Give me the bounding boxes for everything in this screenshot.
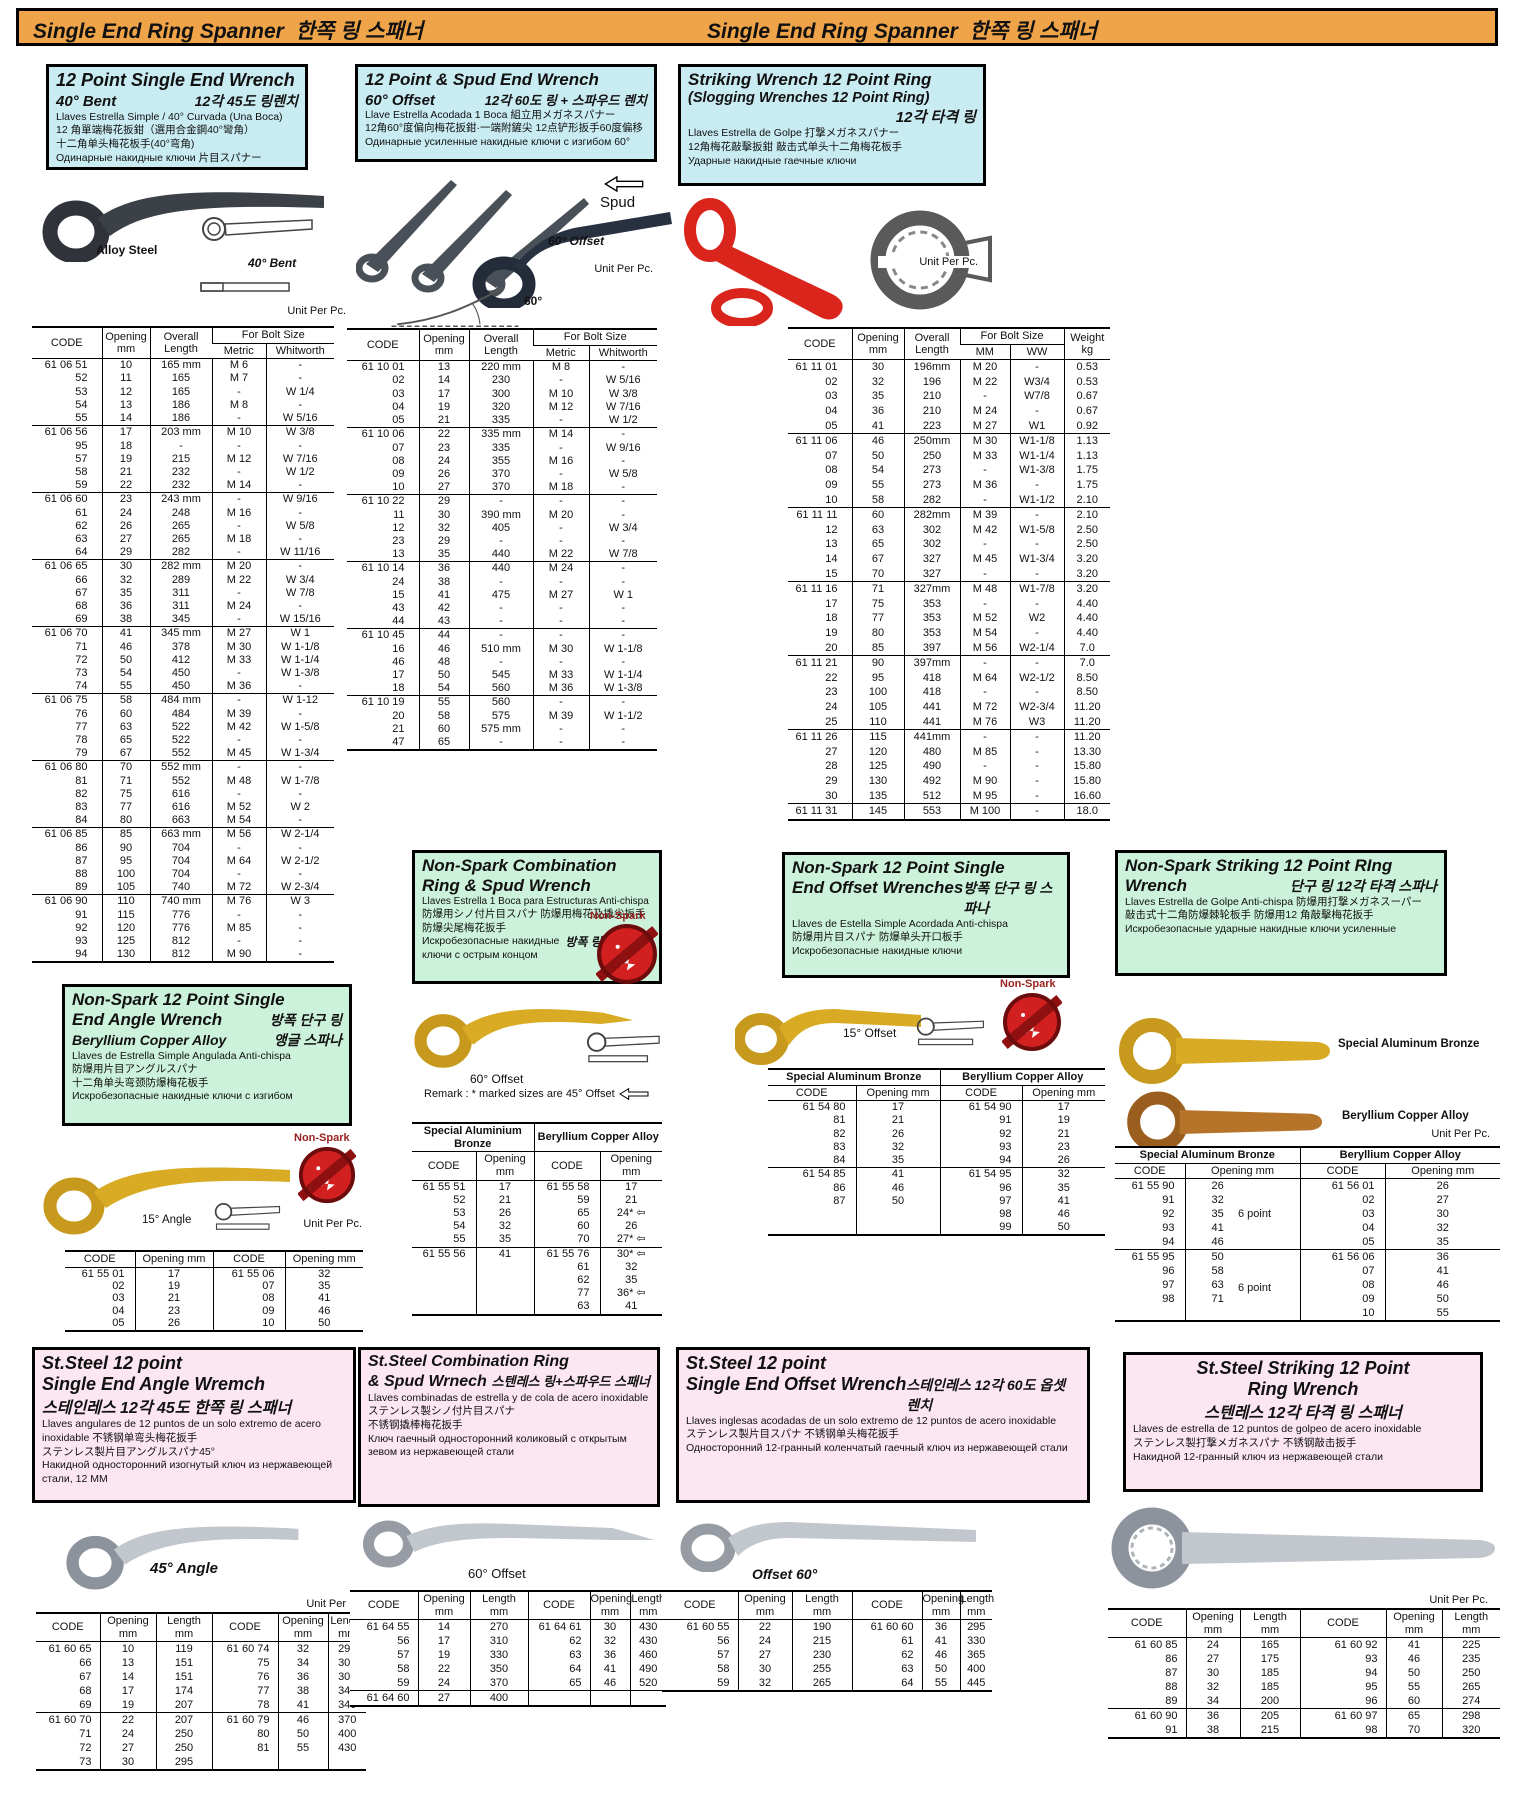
table-cell: 704 [150,842,212,855]
table-cell: 03 [65,1292,135,1304]
static-element: Ключ гаечный односторонний коликовый с о… [368,1433,650,1460]
table-cell: 26 [1385,1179,1500,1194]
column-header: Opening mm [476,1152,534,1180]
table-row: 7250412M 33W 1-1/4 [32,654,334,667]
table-cell: 07 [1300,1264,1385,1278]
static-element: Llaves de Estrella Simple Angulada Anti-… [72,1050,342,1064]
table-row: 96580741 [1115,1264,1500,1278]
table-cell: M 72 [960,700,1010,715]
table-cell: 41 [600,1300,662,1314]
table-cell: W 3/8 [266,426,334,440]
column-header: CODE [347,329,419,361]
table-cell: - [960,597,1010,612]
table-row: 1232405-W 3/4 [347,522,657,535]
static-element [397,288,503,325]
table-cell: 450 [150,667,212,680]
section-title: Non-Spark Striking 12 Point RIng [1125,856,1437,876]
table-cell: 08 [1300,1278,1385,1292]
table-cell: 68 [32,600,102,613]
table-cell: 545 [469,669,533,682]
static-element: End Angle Wrench [72,1010,222,1030]
steel-offset-wrench-illustration [680,1510,980,1572]
table-cell: 16.60 [1064,789,1110,804]
table-cell: 08 [347,455,419,468]
table-row: 0436210M 24-0.67 [788,404,1110,419]
table-cell: W2-1/4 [1010,641,1064,656]
table-cell: 87 [32,855,102,868]
table-cell: 91 [1115,1193,1185,1207]
table-cell: 61 55 51 [412,1180,476,1194]
table-cell: 190 [792,1620,852,1635]
table-cell: 61 11 06 [788,434,852,449]
table-cell: - [960,685,1010,700]
table-cell: M 42 [212,721,266,734]
table-cell: M 90 [212,948,266,962]
table-cell: 46 [1386,1652,1442,1666]
non-spark-icon [298,1146,356,1204]
table-cell: 07 [213,1280,285,1292]
column-header: Whitworth [266,343,334,359]
table-cell: 46 [856,1182,940,1195]
table-cell: M 36 [212,680,266,694]
striking-wrench-table: CODEOpening mmOverall LengthFor Bolt Siz… [788,327,1110,821]
table-cell: 81 [32,775,102,788]
section-title: St.Steel Combination Ring [368,1353,650,1371]
table-cell [476,1287,534,1300]
table-cell: M 20 [212,560,266,574]
table-cell: 250 [1442,1666,1500,1680]
table-cell: 41 [922,1634,960,1648]
static-element: 61 11 0130196mmM 20-0.530232196M 22W3/40… [788,360,1110,820]
table-cell: 61 06 51 [32,359,102,373]
section-title: St.Steel 12 point [42,1353,346,1374]
table-cell: 30 [590,1620,630,1635]
table-cell: W 1-1/4 [589,669,657,682]
table-cell: 207 [156,1713,212,1728]
table-cell: 05 [1300,1235,1385,1250]
column-header: Opening mm [135,1251,213,1267]
table-cell: 282 [904,493,960,508]
table-cell: M 27 [960,419,1010,434]
table-cell: 36 [590,1648,630,1662]
table-row: 4648--- [347,656,657,669]
nonspark-offset-table: Special Aluminum BronzeBeryllium Copper … [768,1068,1105,1236]
static-element: Llaves angulares de 12 puntos de un solo… [42,1418,346,1445]
static-element [369,1526,409,1562]
table-cell: M 12 [212,453,266,466]
static-element: CODEOpening mmCODEOpening mm [65,1251,363,1267]
table-cell: 0.53 [1064,375,1110,390]
table-cell: W 3/8 [589,388,657,401]
table-cell: W1-1/2 [1010,493,1064,508]
table-cell: 92 [940,1128,1022,1141]
table-cell: 484 mm [150,694,212,708]
column-header: CODE [32,327,102,359]
table-cell: 27 [788,745,852,760]
table-cell: 282mm [904,508,960,523]
static-element: Special Aluminium BronzeBeryllium Copper… [412,1123,662,1152]
table-row: 1570327--3.20 [788,567,1110,582]
table-cell: - [589,481,657,495]
table-row: 92350330 [1115,1207,1500,1221]
table-cell: 38 [1186,1723,1240,1738]
table-cell: 8.50 [1064,685,1110,700]
offset-60-label: Offset 60° [752,1566,817,1582]
non-spark-icon [1002,992,1062,1052]
table-row: 1365302--2.50 [788,537,1110,552]
static-element [421,1020,466,1061]
table-cell: W 7/8 [266,587,334,600]
table-cell: 24 [418,1676,470,1691]
table-row: 58302556350400 [662,1662,992,1676]
table-row: 0232196M 22W3/40.53 [788,375,1110,390]
table-cell: M 45 [212,747,266,761]
table-cell: 13 [419,361,469,375]
table-row: 61 06 5617203 mmM 10W 3/8 [32,426,334,440]
table-cell: 64 [32,546,102,560]
table-cell: - [1010,759,1064,774]
table-row: 98710950 [1115,1292,1500,1306]
table-cell: 81 [768,1114,856,1127]
table-row: 0335210-W7/80.67 [788,389,1110,404]
table-cell [278,1755,328,1770]
table-row: 24105441M 72W2-3/411.20 [788,700,1110,715]
table-cell: 23 [1022,1141,1105,1154]
table-cell: M 6 [212,359,266,373]
static-element: Искробезопасные ударные накидные ключи у… [1125,923,1437,937]
table-row: 61 10 4544--- [347,629,657,643]
table-cell: 62 [32,520,102,533]
table-cell: 50 [1022,1221,1105,1235]
table-cell: - [212,546,266,560]
table-cell: 50 [419,669,469,682]
static-element: Special Aluminum BronzeBeryllium Copper … [768,1069,1105,1101]
table-cell: M 85 [960,745,1010,760]
static-element [1021,1013,1025,1017]
table-cell: 18 [347,682,419,696]
table-cell: M 52 [960,611,1010,626]
table-cell: 616 [150,788,212,801]
table-cell: 55 [419,696,469,710]
table-row: 03210841 [65,1292,363,1304]
table-cell: 274 [1442,1694,1500,1709]
table-row: 6341 [412,1300,662,1314]
static-element [1134,1098,1182,1146]
table-cell: 19 [1022,1114,1105,1127]
table-cell: 510 mm [469,643,533,656]
table-row: 81219119 [768,1114,1105,1127]
table-cell: 105 [102,881,150,895]
table-cell: 36 [102,600,150,613]
table-cell: 215 [150,453,212,466]
table-cell: - [1010,656,1064,671]
table-cell: 46 [347,656,419,669]
table-cell: 250 [156,1741,212,1755]
table-cell: 61 60 55 [662,1620,738,1635]
angle-45-label: 45° Angle [150,1560,218,1577]
table-cell: 30 [852,360,904,375]
table-cell: W 1/2 [266,466,334,479]
table-cell: - [150,440,212,453]
table-cell: - [1010,360,1064,375]
table-cell: 18 [102,440,150,453]
table-cell: 7.0 [1064,641,1110,656]
table-cell: 282 [150,546,212,560]
table-cell: 230 [469,374,533,387]
table-cell: 36* ⇦ [600,1287,662,1300]
alloy-steel-label: Alloy Steel [96,243,157,257]
table-cell: 17 [419,388,469,401]
table-cell: 59 [32,479,102,493]
table-cell: 24 [1186,1638,1240,1653]
table-row: 88321859555265 [1108,1680,1500,1694]
table-cell: 24 [788,700,852,715]
table-cell: 17 [135,1267,213,1280]
table-row: 7660484M 39- [32,708,334,721]
table-cell: 0.53 [1064,360,1110,375]
table-row: 61 11 31145553M 100-18.0 [788,804,1110,820]
table-row: 0723335-W 9/16 [347,442,657,455]
table-cell: 65 [419,736,469,750]
table-cell: 15 [347,589,419,602]
angle-60-value: 60° [524,294,542,308]
table-cell: 553 [904,804,960,820]
static-element: 十二角单头弯颈防爆梅花板手 [72,1077,342,1091]
table-cell: 52 [412,1194,476,1207]
static-element: Special Aluminum BronzeBeryllium Copper … [1115,1147,1500,1179]
table-cell: 61 [852,1634,922,1648]
table-cell: W 3/4 [266,574,334,587]
table-row: 4443--- [347,615,657,629]
static-element: Накидной односторонний изогнутый ключ из… [42,1459,346,1486]
table-cell: M 16 [212,507,266,520]
table-cell: 35 [856,1154,940,1168]
table-cell: 220 mm [469,361,533,375]
table-cell: 430 [630,1634,666,1648]
table-cell: 46 [590,1676,630,1691]
static-element: 12각 45도 링렌치 [195,91,298,111]
static-element: 61 06 5110165 mmM 6-5211165M 7-5312165-W… [32,359,334,963]
table-cell: 61 60 90 [1108,1709,1186,1724]
ring-side-diagram [200,212,316,242]
table-cell: 26 [476,1207,534,1220]
table-cell: M 56 [212,828,266,842]
table-cell: 26 [600,1220,662,1233]
table-cell: - [212,466,266,479]
table-row: 0955273M 36-1.75 [788,478,1110,493]
table-cell: 53 [412,1207,476,1220]
table-row: 0854273-W1-3/81.75 [788,463,1110,478]
table-cell: 93 [32,935,102,948]
table-cell: - [589,361,657,375]
table-row: 2295418M 64W2-1/28.50 [788,671,1110,686]
table-row: 7763522M 42W 1-5/8 [32,721,334,734]
table-row: 1027370M 18- [347,481,657,495]
static-element: CODEOpening mmLength mmCODEOpening mmLen… [36,1613,366,1642]
table-cell: 61 11 16 [788,582,852,597]
table-cell: W 7/8 [589,548,657,562]
table-cell: 30 [738,1662,792,1676]
table-cell: 490 [904,759,960,774]
table-row: 61 54 854161 54 9532 [768,1168,1105,1182]
section-header-striking: Striking Wrench 12 Point Ring (Slogging … [678,64,986,186]
table-cell: W1-5/8 [1010,523,1064,538]
table-cell: 91 [32,909,102,922]
table-cell: 105 [852,700,904,715]
table-row: 1055 [1115,1306,1500,1321]
static-element: Одинарные усиленные накидные ключи с изг… [365,136,647,150]
table-cell: 61 60 65 [36,1642,100,1657]
ring-diagram [915,1014,987,1050]
table-cell: 310 [470,1634,528,1648]
static-element: CODEOpening mmOverall LengthFor Bolt Siz… [32,327,334,343]
table-cell: - [212,386,266,399]
table-row: 7967552M 45W 1-3/4 [32,747,334,761]
table-cell: - [469,576,533,589]
table-cell: 186 [150,399,212,412]
table-cell: 35 [102,587,150,600]
table-cell: - [533,629,589,643]
table-cell: W 2-1/4 [266,828,334,842]
static-element [1176,1038,1330,1064]
table-cell: 12 [102,386,150,399]
table-cell: 32 [102,574,150,587]
column-header: For Bolt Size [960,328,1064,344]
table-cell: W 3 [266,895,334,909]
table-cell: 235 [1442,1652,1500,1666]
column-header: WW [1010,344,1064,360]
table-cell: 120 [102,922,150,935]
static-element: 12角60°度偏向梅花扳鉗·一端附鏟尖 12点铲形扳手60度偏移 [365,122,647,136]
table-cell: 75 [212,1656,278,1670]
table-cell: 65 [528,1676,590,1691]
table-row: 61 10 2229--- [347,495,657,509]
steel-angle-wrench-illustration [55,1510,315,1590]
static-element: Single End Angle Wremch [42,1374,346,1395]
table-row: 82269221 [768,1128,1105,1141]
table-cell: 61 56 06 [1300,1250,1385,1265]
static-element: 단구 링 12각 타격 스파나 [1290,876,1437,896]
table-cell: 76 [212,1670,278,1684]
column-header: CODE [1300,1163,1385,1179]
table-cell: 776 [150,922,212,935]
table-row: 9518--- [32,440,334,453]
table-cell: 70 [102,761,150,775]
table-cell: 490 [630,1662,666,1676]
table-cell: 61 55 76 [534,1247,600,1261]
table-cell: 50 [278,1727,328,1741]
table-cell: 17 [100,1684,156,1698]
table-cell: 704 [150,855,212,868]
table-row: 1058282-W1-1/22.10 [788,493,1110,508]
table-cell: 57 [350,1648,418,1662]
table-cell: 21 [856,1114,940,1127]
table-cell: - [533,696,589,710]
table-cell: - [266,479,334,493]
static-element [1120,1516,1184,1580]
table-cell: M 16 [533,455,589,468]
table-cell: 88 [1108,1680,1186,1694]
table-row: 02190735 [65,1280,363,1292]
table-cell: 61 54 80 [768,1101,856,1115]
table-cell: 86 [32,842,102,855]
table-cell: 26 [102,520,150,533]
table-cell: 663 mm [150,828,212,842]
table-cell: 552 [150,747,212,761]
unit-per-pc-label: Unit Per Pc. [230,305,346,317]
table-cell: 60 [419,723,469,736]
table-row: 86271759346235 [1108,1652,1500,1666]
table-cell: 54 [412,1220,476,1233]
table-cell: 61 10 45 [347,629,419,643]
table-cell: 48 [419,656,469,669]
table-row: 94460535 [1115,1235,1500,1250]
table-cell: - [212,667,266,680]
column-header: Special Aluminium Bronze [412,1123,534,1152]
table-row: 6327265M 18- [32,533,334,546]
table-cell: 61 60 60 [852,1620,922,1635]
table-row: 57193306336460 [350,1648,666,1662]
table-cell: 26 [1022,1154,1105,1168]
static-element: 앵글 스파나 [274,1030,342,1050]
column-header: Opening mm [600,1152,662,1180]
section-header-ss-offset: St.Steel 12 point Single End Offset Wren… [676,1347,1090,1503]
table-cell: 63 [528,1648,590,1662]
table-cell: 46 [1185,1235,1300,1250]
table-cell: - [266,948,334,962]
static-element: ステンレス製打撃メガネスパナ 不锈钢敲击扳手 [1133,1437,1473,1451]
table-cell: - [266,507,334,520]
table-cell: 370 [469,481,533,495]
table-cell: 512 [904,789,960,804]
static-element: Искробезопасные накидные ключи с изгибом [72,1090,342,1104]
table-cell: 64 [528,1662,590,1676]
table-row: 61 64 6027400 [350,1691,666,1707]
table-cell: 82 [32,788,102,801]
table-cell: 41 [285,1292,363,1304]
table-cell: - [533,576,589,589]
table-cell: 12 [788,523,852,538]
table-cell: 522 [150,721,212,734]
table-cell: 26 [1185,1179,1300,1194]
table-cell: 350 [470,1662,528,1676]
table-cell: 94 [32,948,102,962]
table-cell: 552 [150,775,212,788]
static-element: 스텐레스 12각 타격 링 스패너 [1133,1399,1473,1423]
table-cell: 65 [534,1207,600,1220]
table-row: 7736* ⇦ [412,1287,662,1300]
column-header: Opening mm [1386,1609,1442,1638]
table-cell: M 76 [960,715,1010,730]
static-element: Special Aluminum BronzeBeryllium Copper … [768,1069,1105,1085]
table-cell: 61 06 70 [32,627,102,641]
table-cell: 58 [350,1662,418,1676]
table-cell: M 76 [212,895,266,909]
table-cell: 330 [470,1648,528,1662]
table-row: 53266524* ⇦ [412,1207,662,1220]
table-cell: M 27 [533,589,589,602]
table-cell: W 11/16 [266,546,334,560]
table-row: 61 06 5110165 mmM 6- [32,359,334,373]
table-cell: 64 [852,1676,922,1691]
table-cell [328,1755,366,1770]
static-element [1182,1532,1495,1564]
table-row: 28125490--15.80 [788,759,1110,774]
table-cell: - [266,788,334,801]
table-cell: M 20 [533,509,589,522]
table-cell: W 1-3/4 [266,747,334,761]
column-header: Beryllium Copper Alloy [940,1069,1105,1085]
